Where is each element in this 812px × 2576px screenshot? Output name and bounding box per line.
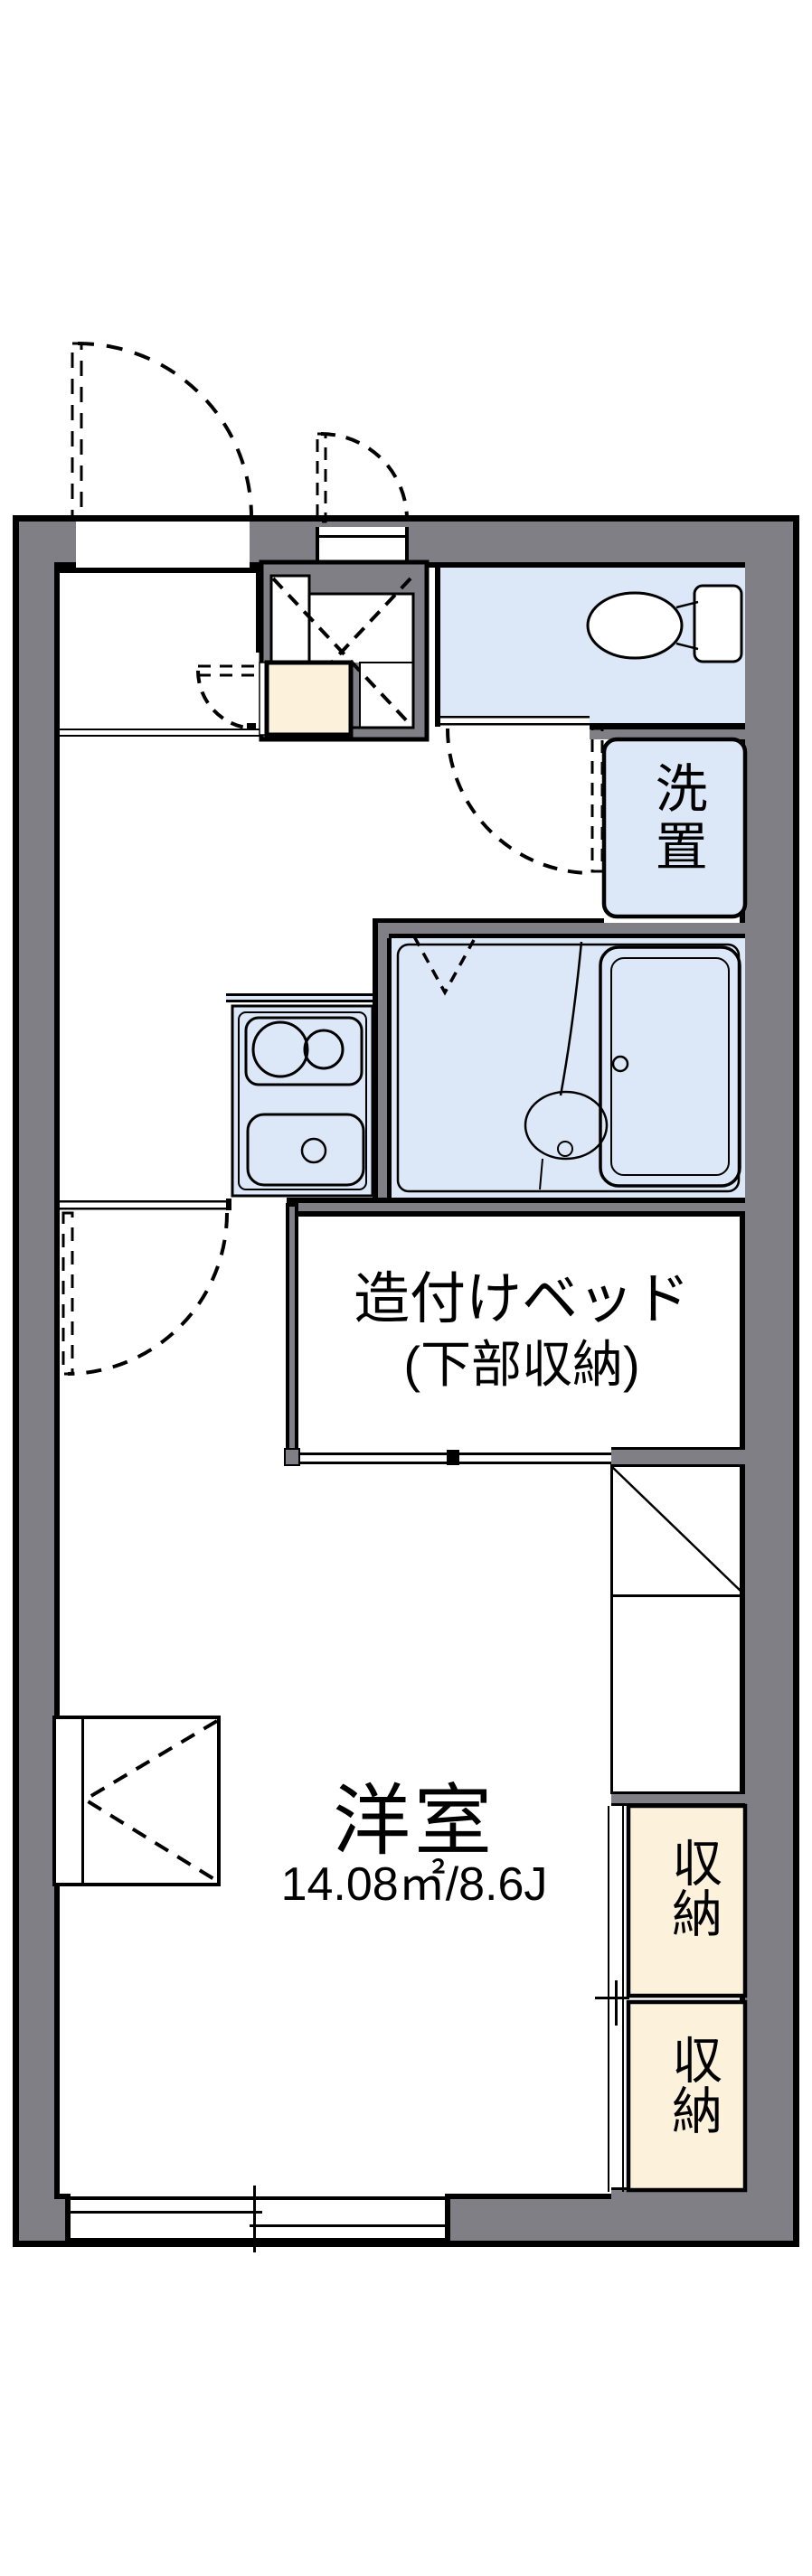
storage-lower-label: 収納 xyxy=(661,2034,726,2135)
shoe-cabinet xyxy=(260,663,351,735)
floorplan-page: 洗置 造付けベッド (下部収納) 洋室 14.08㎡/8.6J 収納 収納 xyxy=(0,0,812,2576)
built-in-bed-label: 造付けベッド (下部収納) xyxy=(298,1267,745,1397)
wall-hatch-box xyxy=(54,1717,219,1885)
duct-door-swing-arc xyxy=(317,434,407,522)
entrance-door-recess xyxy=(60,522,256,573)
entrance-door-swing-arc xyxy=(72,343,251,517)
room-area-label: 14.08㎡/8.6J xyxy=(212,1846,617,1913)
laundry-label: 洗置 xyxy=(644,761,708,877)
bed-label-line1: 造付けベッド xyxy=(298,1267,745,1332)
kitchen-counter-edge xyxy=(226,993,373,1002)
bed-label-line2: (下部収納) xyxy=(298,1332,745,1397)
storage-upper-label: 収納 xyxy=(661,1837,726,1938)
